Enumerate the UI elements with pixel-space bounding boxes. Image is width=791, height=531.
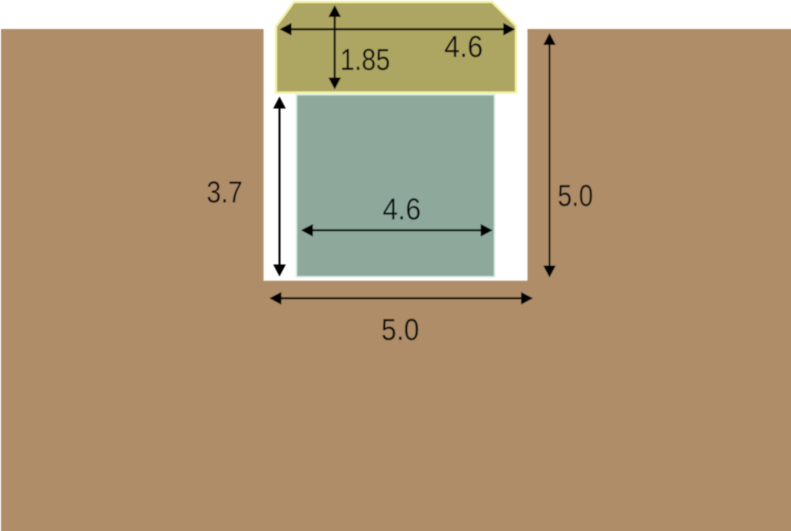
svg-text:3.7: 3.7 bbox=[207, 175, 243, 210]
svg-text:5.0: 5.0 bbox=[558, 178, 594, 213]
svg-text:5.0: 5.0 bbox=[381, 312, 419, 347]
svg-text:4.6: 4.6 bbox=[444, 29, 483, 64]
svg-text:4.6: 4.6 bbox=[383, 192, 421, 227]
svg-text:1.85: 1.85 bbox=[340, 42, 390, 77]
